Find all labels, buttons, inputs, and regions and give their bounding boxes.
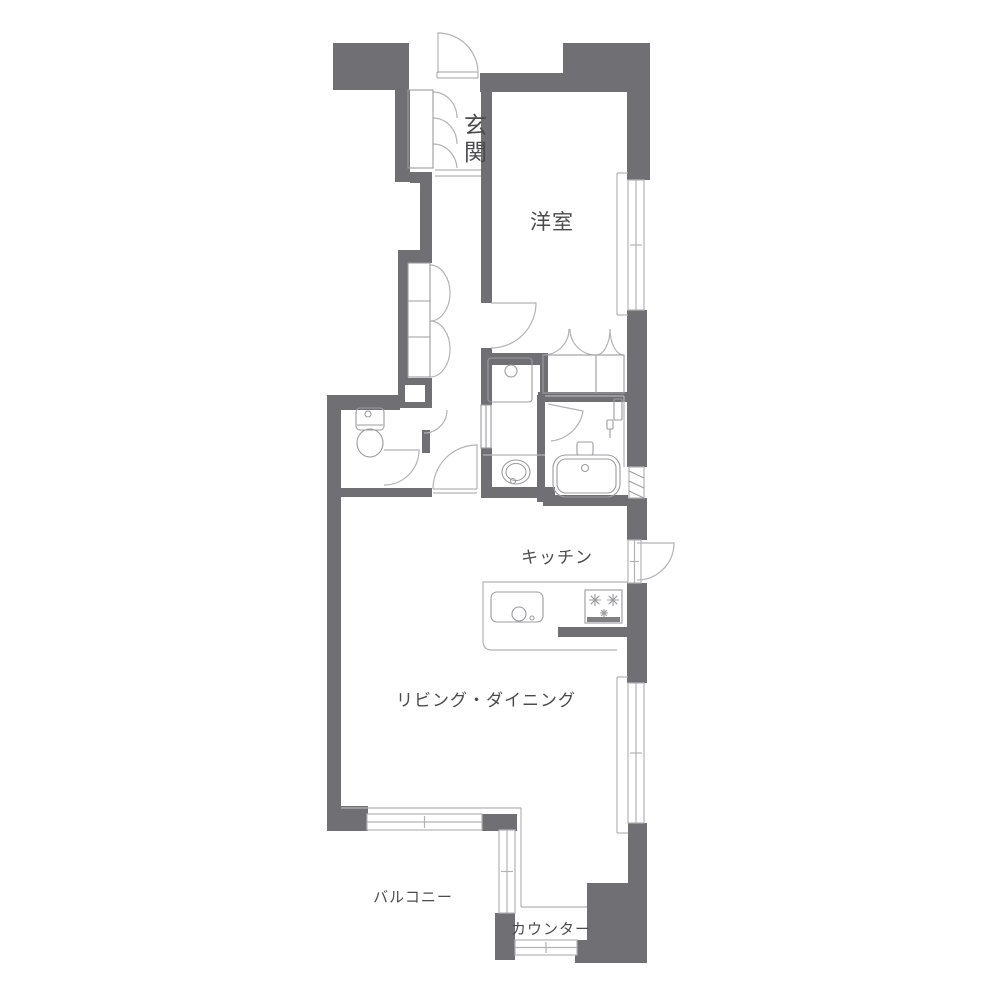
wall-segment [480,73,627,92]
wall-segment [398,263,408,378]
door-swing-arc [430,265,450,293]
fixture-outline [553,455,620,497]
burner-star [589,594,601,606]
room-label-genkan: 玄関 [464,112,488,165]
wall-segment [537,395,545,502]
wall-segment [410,172,432,183]
room-label-balcony: バルコニー [373,889,453,906]
door-swing-arc [433,144,457,168]
door-swing-arc [637,543,674,580]
wall-segment [481,353,548,365]
door-swing-arc [548,404,583,441]
door-swing-arc [384,450,419,485]
burner-star [600,609,608,617]
door-swing-arc [491,303,536,348]
floor-plan-canvas: 玄関洋室キッチンリビング・ダイニングバルコニーカウンター [0,0,1000,1000]
wall-segment [482,814,517,831]
wall-segment [627,583,647,683]
fixture-basin [357,429,383,457]
fixture-outline [408,263,430,377]
wall-segment [327,806,368,831]
fixture-outline [607,420,613,429]
door-swing-arc [430,321,450,349]
fixture-detail [582,465,589,472]
door-swing-arc [430,293,450,321]
wall-segment [558,627,628,637]
stove-grill [587,617,620,622]
wall-segment [398,250,430,263]
door-swing-arc [433,445,477,489]
door-swing-arc [610,329,624,355]
door-swing-arc [543,329,569,355]
room-label-yoshitsu: 洋室 [530,211,574,234]
wall-segment [540,353,548,395]
fixture-outline [614,399,622,420]
door-swing-arc [570,329,596,355]
wall-segment [627,310,647,467]
pipe-space [405,385,425,402]
door-swing-arc [596,329,610,355]
door-swing-arc [433,118,457,144]
fixture-detail [365,411,371,417]
fixture-detail [511,479,516,484]
fixture-detail [530,616,534,620]
fixture-detail [505,365,517,377]
wall-segment [627,43,650,180]
wall-segment [627,498,647,540]
fixture-detail [512,607,526,621]
room-label-counter: カウンター [511,921,591,938]
door-swing-arc [433,92,457,118]
wall-segment [340,488,432,497]
wall-segment [575,940,647,963]
wall-segment [333,43,409,90]
fixture-outline [408,90,433,168]
fixture-outline [577,442,593,455]
room-label-kitchen: キッチン [521,548,593,567]
wall-segment [327,395,341,812]
fixture-outline [557,459,616,493]
door-swing-arc [424,410,447,433]
door-swing-arc [430,349,450,377]
room-label-living-dining: リビング・ダイニング [396,691,576,710]
burner-star [607,594,619,606]
door-swing-arc [438,33,478,73]
fixture-outline [543,355,624,393]
floor-plan-page: 玄関洋室キッチンリビング・ダイニングバルコニーカウンター [0,0,1000,1000]
fixture-basin [506,464,526,481]
